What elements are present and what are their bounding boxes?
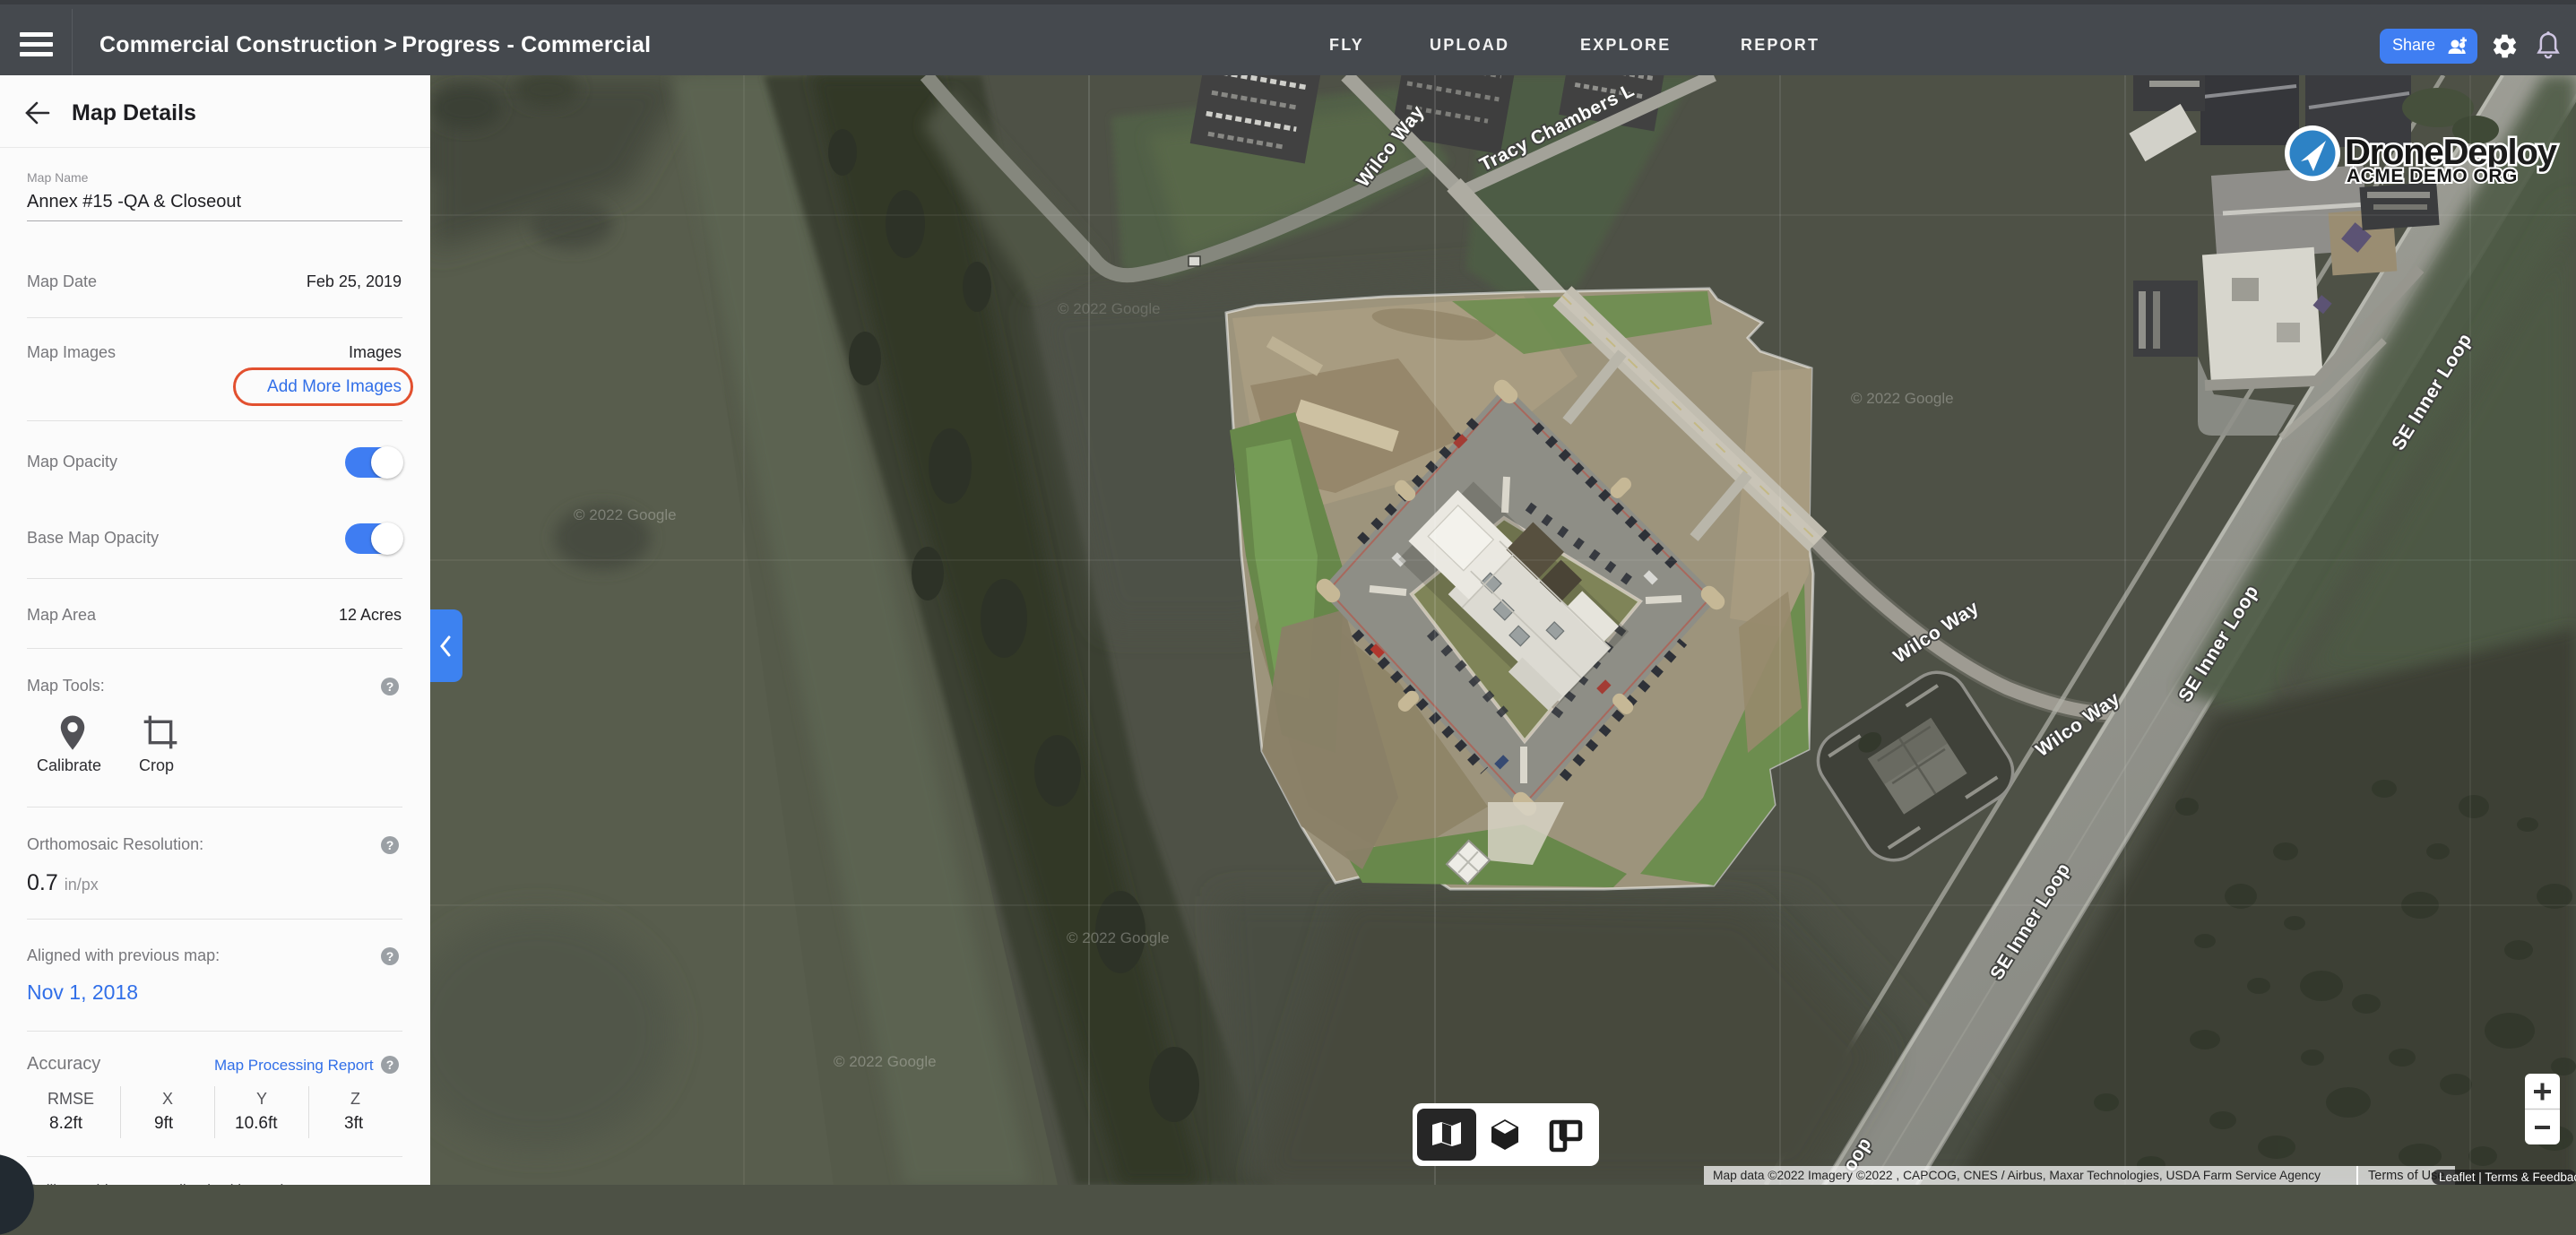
- svg-text:Map data ©2022 Imagery ©2022 ,: Map data ©2022 Imagery ©2022 , CAPCOG, C…: [1713, 1169, 2321, 1182]
- svg-text:© 2022 Google: © 2022 Google: [1851, 390, 1954, 407]
- svg-text:© 2022 Google: © 2022 Google: [1067, 929, 1170, 946]
- svg-text:Leaflet | Terms & Feedback: Leaflet | Terms & Feedback: [2439, 1170, 2576, 1184]
- svg-text:© 2022 Google: © 2022 Google: [574, 506, 677, 523]
- svg-text:ACME DEMO ORG: ACME DEMO ORG: [2347, 166, 2518, 186]
- svg-text:© 2022 Google: © 2022 Google: [834, 1053, 937, 1070]
- svg-text:© 2022 Google: © 2022 Google: [1058, 300, 1161, 317]
